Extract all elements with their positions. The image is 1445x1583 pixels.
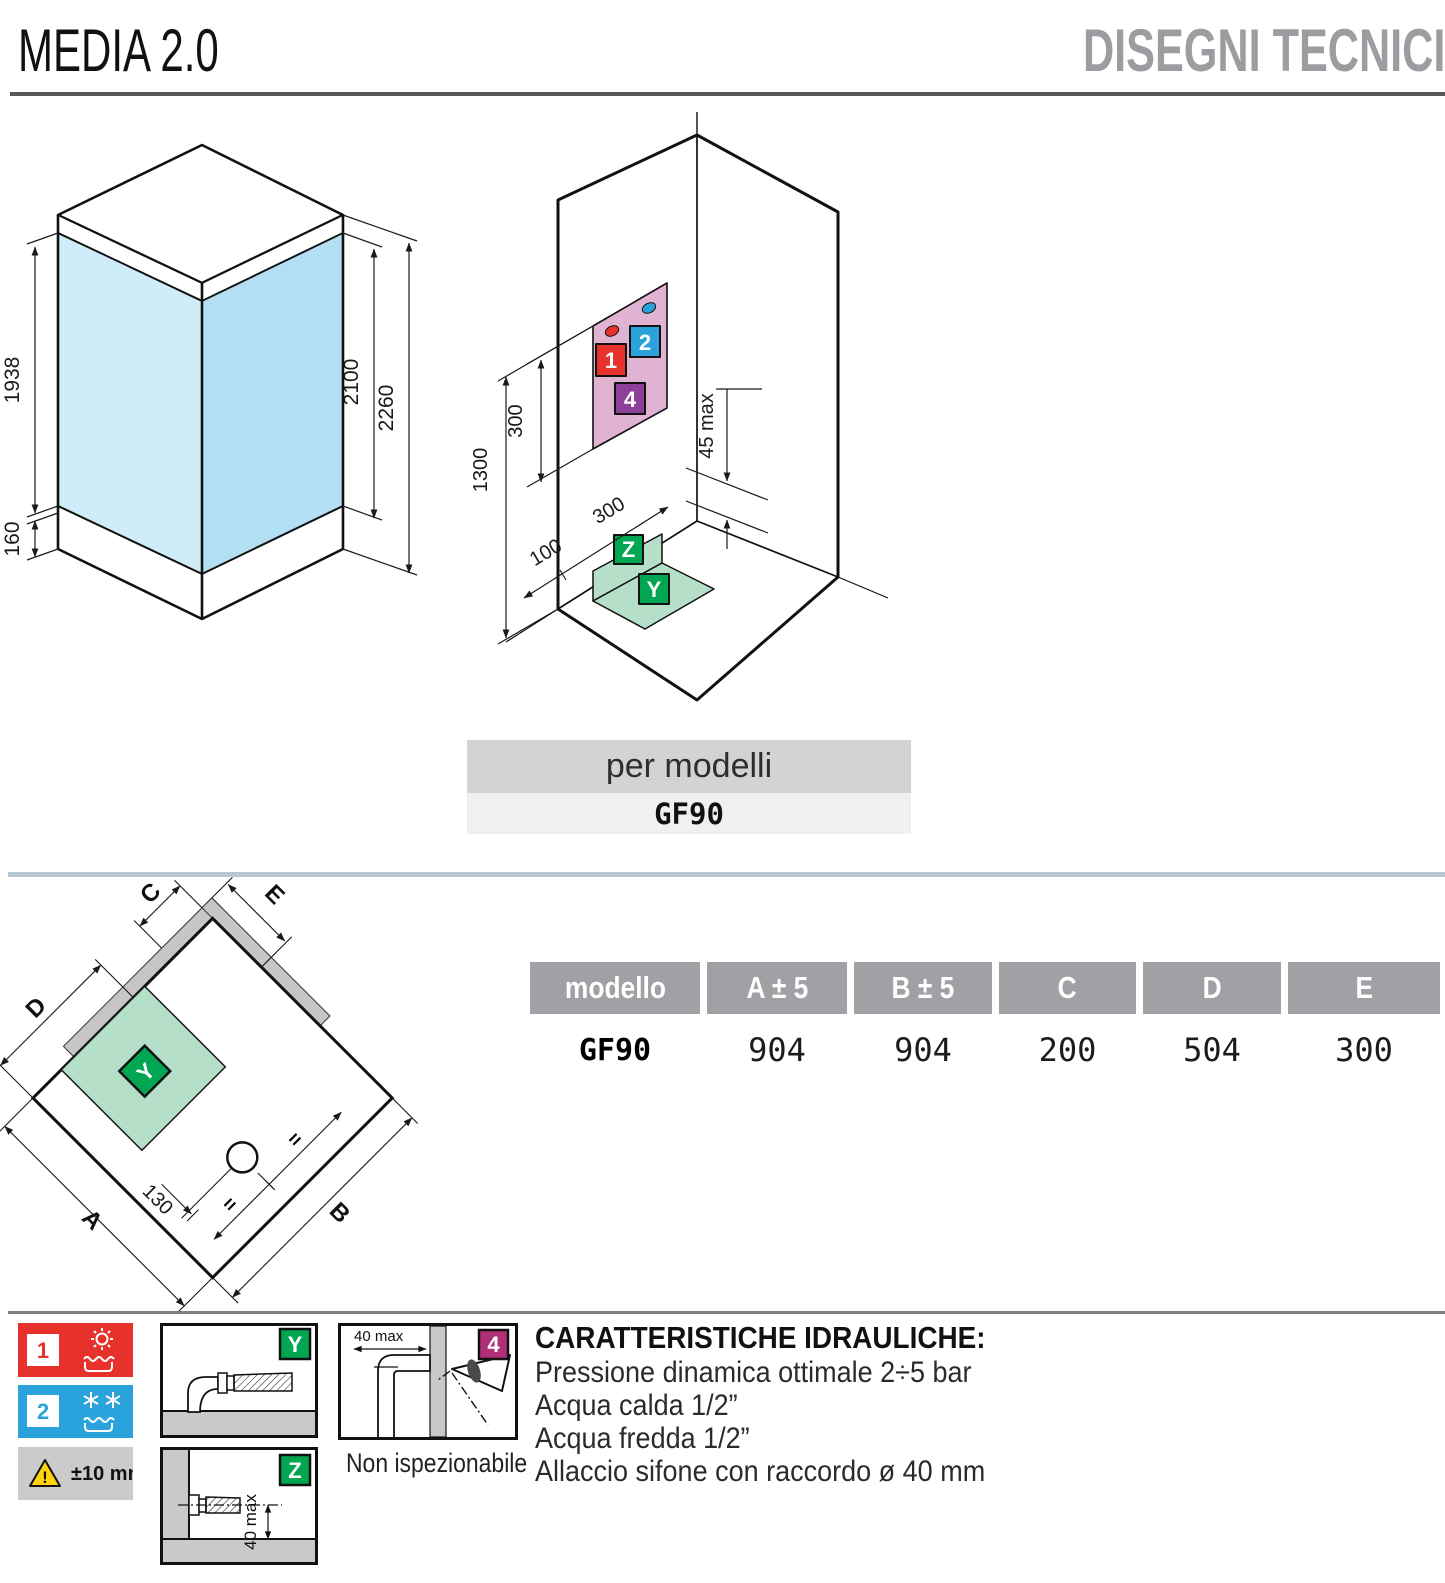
table-header-a: A ± 5: [707, 962, 847, 1014]
dimension-table-header: modello A ± 5 B ± 5 C D E: [530, 962, 1440, 1014]
table-cell-a: 904: [707, 1028, 847, 1072]
table-cell-c: 200: [999, 1028, 1136, 1072]
cabin-dimension-lines-left: [27, 233, 58, 560]
table-cell-model: GF90: [530, 1028, 700, 1072]
table-header-modello: modello: [530, 962, 700, 1014]
marker-four-badge: 4: [615, 383, 645, 414]
hydraulics-line-pressure: Pressione dinamica ottimale 2÷5 bar: [535, 1356, 972, 1389]
legend-tolerance-text: ±10 mm: [71, 1463, 133, 1485]
svg-text:4: 4: [624, 387, 637, 412]
dim-tray-height: 160: [1, 521, 24, 556]
dim-install-height: 1300: [470, 448, 492, 493]
table-header-d: D: [1143, 962, 1281, 1014]
page-title-text: MEDIA 2.0: [18, 16, 219, 85]
section-title-text: DISEGNI TECNICI: [1083, 16, 1445, 85]
hydraulics-title: CARATTERISTICHE IDRAULICHE:: [535, 1320, 986, 1356]
dim-glass-height: 1938: [1, 357, 24, 404]
table-header-e: E: [1288, 962, 1440, 1014]
hydraulic-characteristics: CARATTERISTICHE IDRAULICHE: Pressione di…: [535, 1320, 1135, 1488]
legend-hot-number: 1: [37, 1338, 49, 1363]
svg-text:Y: Y: [647, 577, 662, 602]
svg-text:Z: Z: [622, 537, 635, 562]
svg-text:Z: Z: [288, 1458, 301, 1483]
dim-gap-max: 45 max: [696, 393, 718, 459]
plan-label-a: A: [76, 1204, 107, 1235]
header-divider: [10, 92, 1445, 96]
non-inspectable-caption: Non ispezionabile: [330, 1448, 530, 1479]
legend-cold-number: 2: [37, 1399, 49, 1424]
dim-total-height: 2260: [375, 385, 398, 432]
table-cell-e: 300: [1288, 1028, 1440, 1072]
table-header-c: C: [999, 962, 1136, 1014]
dim-door-height: 2100: [340, 359, 363, 406]
model-bar: GF90: [467, 793, 911, 834]
cabin-isometric-drawing: 1938 160 2100 2260: [1, 145, 417, 619]
footer-divider: [8, 1311, 1445, 1314]
marker-hot-badge: 1: [596, 344, 626, 376]
marker-z-badge: Z: [614, 535, 643, 564]
isometric-drawings: 1938 160 2100 2260: [0, 100, 960, 745]
badge-four: 4: [479, 1330, 508, 1359]
installation-isometric-drawing: 1 2 4 Z Y: [470, 112, 888, 700]
table-cell-b: 904: [854, 1028, 992, 1072]
hydraulics-line-hot: Acqua calda 1/2”: [535, 1389, 738, 1422]
plan-label-e: E: [259, 879, 289, 909]
section-title: DISEGNI TECNICI: [942, 16, 1445, 85]
warning-icon: !: [30, 1460, 60, 1487]
per-modelli-label: per modelli: [606, 747, 772, 786]
legend-tolerance: ! ±10 mm: [18, 1447, 133, 1500]
marker-y-badge: Y: [639, 574, 669, 604]
badge-y: Y: [280, 1329, 310, 1359]
hydraulics-line-siphon: Allaccio sifone con raccordo ø 40 mm: [535, 1455, 985, 1488]
diagram-z-dim: 40 max: [241, 1494, 260, 1550]
svg-text:!: !: [42, 1468, 48, 1487]
marker-cold-badge: 2: [630, 326, 660, 357]
per-modelli-bar: per modelli: [467, 740, 911, 793]
svg-text:1: 1: [605, 348, 617, 373]
svg-text:4: 4: [487, 1332, 500, 1357]
dimension-table-row: GF90 904 904 200 504 300: [530, 1028, 1440, 1072]
plan-view-drawing: Y D C E A: [0, 860, 470, 1340]
legend-hot-water: 1: [18, 1323, 133, 1377]
diagram-z: 40 max Z: [160, 1447, 318, 1565]
diagram-non-inspectable: 40 max 4: [338, 1323, 518, 1440]
page-title: MEDIA 2.0: [18, 16, 305, 85]
badge-z: Z: [280, 1455, 310, 1485]
legend-cold-water: 2: [18, 1385, 133, 1438]
dim-panel-height: 300: [505, 404, 527, 437]
diagram-4-dim: 40 max: [354, 1328, 404, 1345]
model-value: GF90: [654, 797, 724, 831]
svg-text:Y: Y: [288, 1332, 303, 1357]
diagram-y: Y: [160, 1323, 318, 1438]
technical-sheet-page: MEDIA 2.0 DISEGNI TECNICI: [0, 0, 1445, 1583]
table-cell-d: 504: [1143, 1028, 1281, 1072]
svg-text:2: 2: [639, 330, 651, 355]
hydraulics-line-cold: Acqua fredda 1/2”: [535, 1422, 750, 1455]
table-header-b: B ± 5: [854, 962, 992, 1014]
